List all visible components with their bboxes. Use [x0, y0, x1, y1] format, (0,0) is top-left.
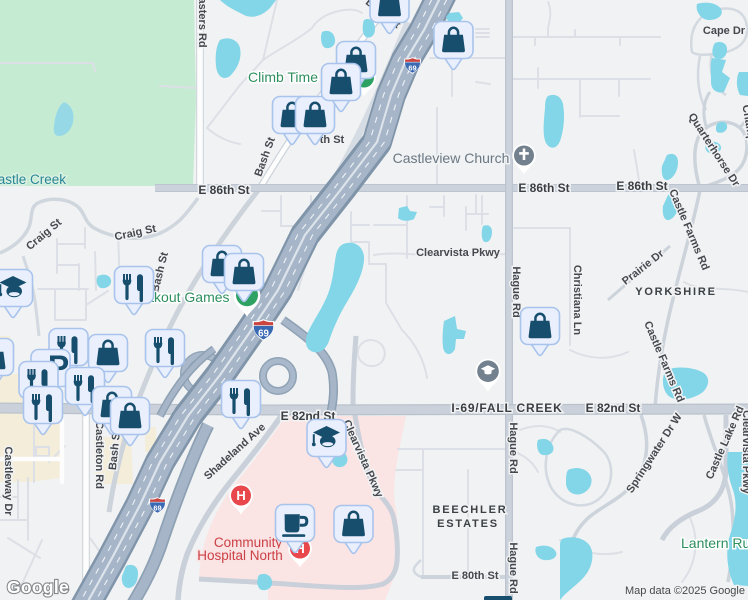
svg-text:Clearvista Pkwy: Clearvista Pkwy — [740, 410, 748, 495]
svg-text:Castleview Church: Castleview Church — [393, 150, 510, 166]
svg-text:BEECHLER: BEECHLER — [433, 504, 508, 516]
svg-text:YORKSHIRE: YORKSHIRE — [635, 286, 717, 298]
svg-text:Climb Time: Climb Time — [248, 69, 318, 85]
svg-text:ESTATES: ESTATES — [437, 518, 499, 530]
svg-text:Castle Creek: Castle Creek — [0, 172, 66, 187]
svg-text:E 86th St: E 86th St — [198, 183, 249, 197]
svg-text:Hague Rd: Hague Rd — [507, 422, 519, 473]
svg-text:Google: Google — [7, 577, 69, 597]
svg-text:Castleway Dr: Castleway Dr — [2, 446, 14, 516]
svg-text:Lantern Run: Lantern Run — [681, 535, 748, 551]
svg-text:E 82nd St: E 82nd St — [586, 401, 641, 415]
svg-text:E 86th St: E 86th St — [616, 179, 667, 193]
svg-text:Masters Rd: Masters Rd — [196, 0, 208, 48]
svg-text:I-69/FALL CREEK: I-69/FALL CREEK — [451, 401, 562, 415]
svg-text:Hospital North: Hospital North — [197, 548, 283, 563]
svg-text:Castleton Rd: Castleton Rd — [93, 421, 105, 489]
svg-text:E 86th St: E 86th St — [518, 181, 569, 195]
svg-text:Clearvista Pkwy: Clearvista Pkwy — [416, 247, 501, 259]
svg-text:Cape Dr: Cape Dr — [703, 25, 746, 37]
svg-text:E 80th St: E 80th St — [451, 570, 498, 582]
svg-text:Hague Rd: Hague Rd — [510, 266, 522, 317]
svg-text:H: H — [236, 488, 245, 503]
svg-text:Map data ©2025 Google: Map data ©2025 Google — [625, 585, 745, 597]
svg-text:Hague Rd: Hague Rd — [507, 542, 519, 593]
svg-text:th St: th St — [320, 134, 345, 146]
svg-text:Christiana Ln: Christiana Ln — [571, 265, 583, 336]
